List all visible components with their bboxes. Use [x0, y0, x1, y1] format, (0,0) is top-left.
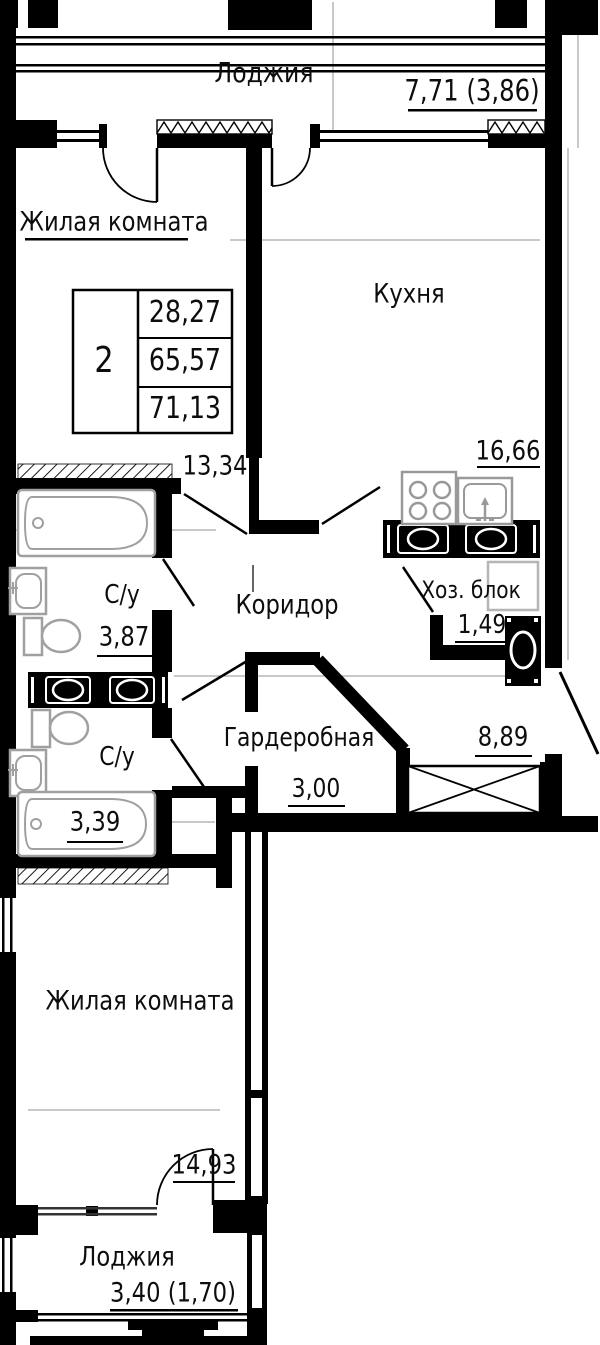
entrance-door-leaf-icon [560, 672, 598, 754]
sink-icon [8, 568, 46, 614]
door-leaf-icon [171, 739, 204, 787]
room-area-loggia-top: 7,71 (3,86) [404, 77, 539, 106]
room-label-bathroom-bottom: С/у [99, 744, 135, 770]
door-leaf-icon [163, 559, 194, 606]
room-label-loggia-top: Лоджия [215, 59, 314, 87]
toilet-icon [24, 618, 80, 655]
room-area-utility: 1,49 [458, 612, 507, 638]
vent-block-icon [28, 672, 168, 708]
door-leaf-icon [182, 661, 247, 700]
room-label-living-bottom: Жилая комната [46, 988, 235, 1015]
room-area-bathroom-top: 3,87 [99, 624, 150, 651]
floor-plan-drawing [0, 0, 600, 1345]
room-label-wardrobe: Гардеробная [224, 725, 375, 751]
room-label-living-top: Жилая комната [20, 209, 209, 236]
room-area-living-bottom: 14,93 [172, 1152, 237, 1179]
toilet-icon [32, 710, 88, 747]
room-area-kitchen: 16,66 [476, 438, 541, 465]
room-area-corridor: 8,89 [478, 724, 529, 751]
door-leaf-icon [184, 494, 247, 534]
stamp-living-area: 28,27 [149, 298, 221, 328]
bathtub-icon [18, 490, 155, 556]
stamp-floor-area: 65,57 [149, 346, 221, 376]
room-label-bathroom-top: С/у [104, 582, 140, 608]
sink-icon [8, 750, 46, 796]
stove-icon [402, 472, 456, 524]
room-label-kitchen: Кухня [373, 281, 444, 308]
room-label-corridor: Коридор [235, 592, 338, 619]
room-area-bathroom-bottom: 3,39 [70, 809, 121, 836]
kitchen-sink-icon [458, 478, 512, 524]
room-area-living-top: 13,34 [183, 453, 248, 480]
room-area-loggia-bottom: 3,40 (1,70) [110, 1280, 236, 1307]
shaft-x-icon [408, 766, 540, 813]
room-area-wardrobe: 3,00 [292, 776, 341, 802]
stamp-rooms-count: 2 [94, 343, 113, 379]
room-label-loggia-bottom: Лоджия [79, 1244, 174, 1271]
stamp-total-area: 71,13 [149, 394, 221, 424]
door-swing-icon [103, 148, 157, 202]
door-leaf-icon [322, 487, 380, 524]
door-swing-icon [272, 148, 310, 186]
kitchen-vent-block-icon [383, 520, 540, 558]
washing-machine-icon [505, 616, 541, 686]
room-label-utility: Хоз. блок [421, 578, 521, 602]
floor-plan: Лоджия 7,71 (3,86) Жилая комната 13,34 К… [0, 0, 600, 1345]
